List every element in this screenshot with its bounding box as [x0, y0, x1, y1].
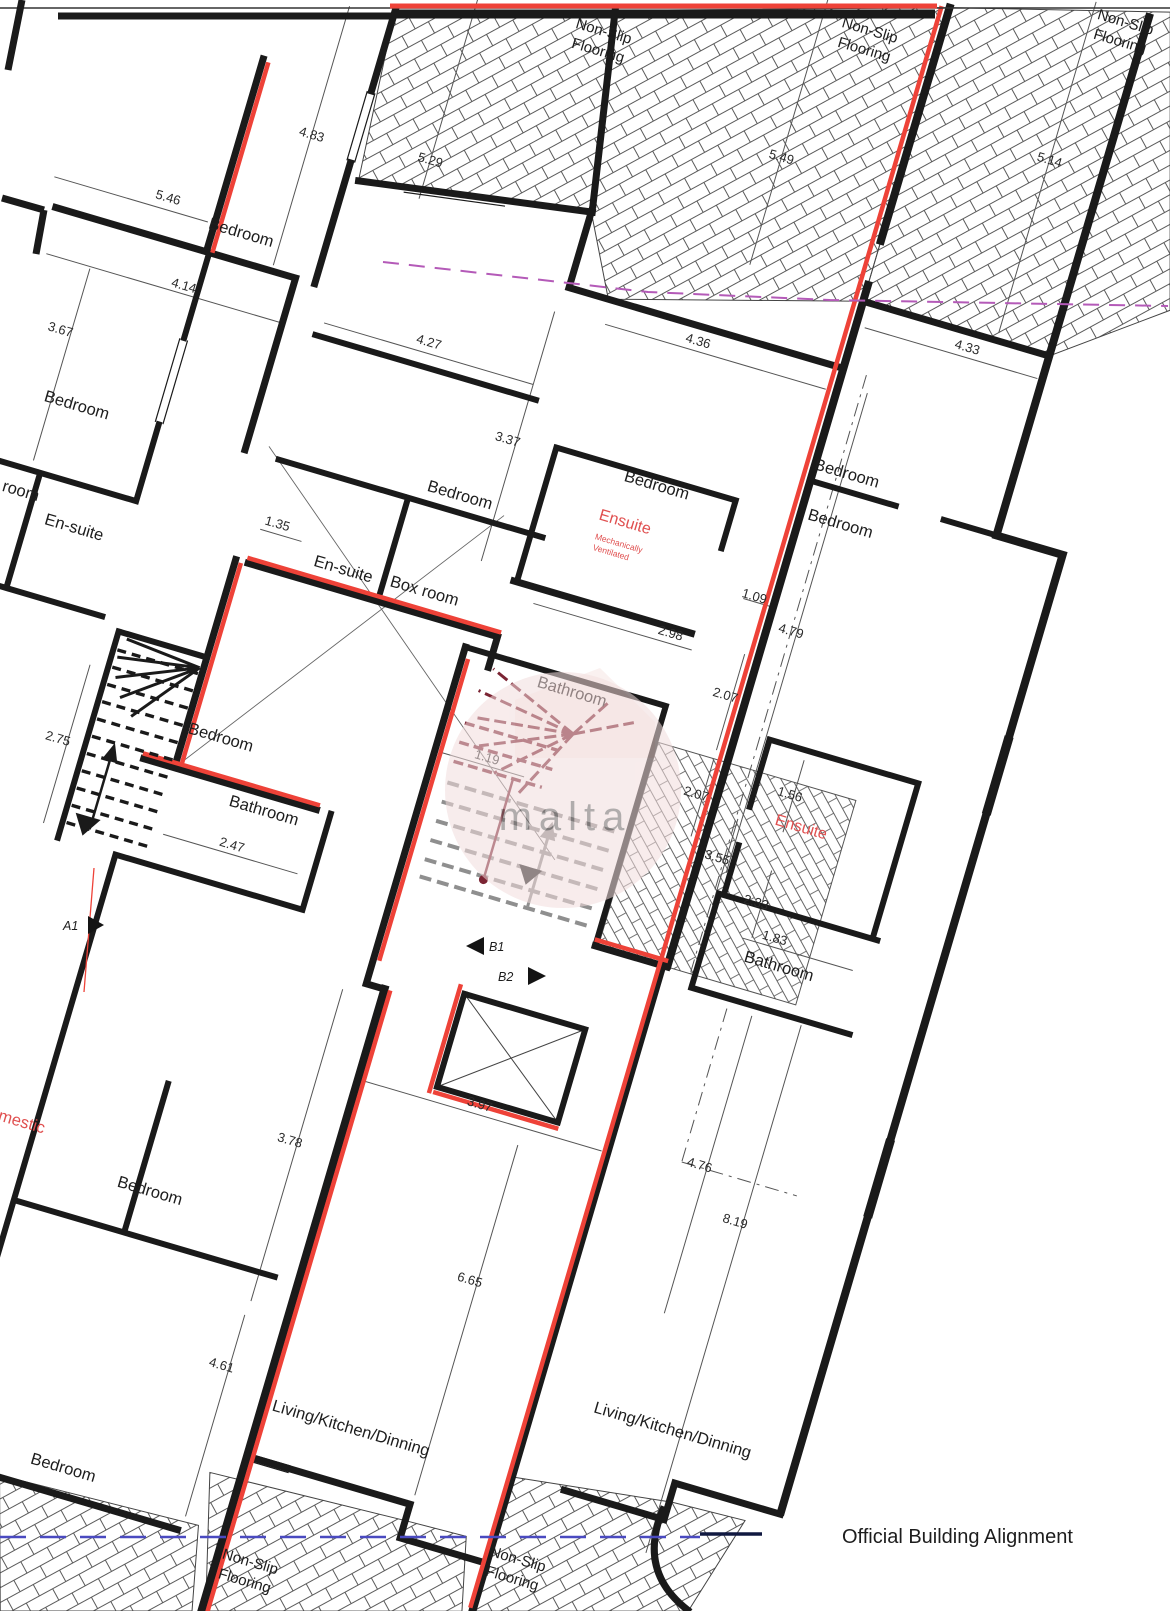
dim-3-37: 3.37 — [494, 428, 523, 450]
room-label-bedroom: Bedroom — [622, 467, 691, 503]
dim-2-75: 2.75 — [44, 727, 73, 749]
room-label-bedroom: Bedroom — [206, 215, 275, 251]
room-label-bedroom: Bedroom — [42, 387, 111, 423]
section-label-a1: A1 — [62, 919, 78, 933]
dim-6-65: 6.65 — [456, 1269, 485, 1291]
dim-4-79: 4.79 — [777, 620, 806, 642]
dim-1-09: 1.09 — [740, 585, 769, 607]
dim-4-27: 4.27 — [415, 331, 444, 353]
alignment-label: Official Building Alignment — [842, 1526, 1073, 1548]
dim-3-78: 3.78 — [276, 1129, 305, 1151]
dim-5-46: 5.46 — [154, 187, 183, 209]
dim-4-76: 4.76 — [685, 1154, 714, 1176]
section-arrow-b2 — [528, 967, 546, 985]
section-label-b1: B1 — [489, 940, 504, 954]
room-label-bedroom: Bedroom — [115, 1173, 184, 1209]
room-label-living: Living/Kitchen/Dinning — [270, 1397, 432, 1460]
room-label-bedroom: Bedroom — [29, 1450, 98, 1486]
room-label-living: Living/Kitchen/Dinning — [592, 1399, 754, 1462]
room-label-bedroom: Bedroom — [806, 506, 875, 542]
agency-watermark: malta — [445, 668, 681, 908]
floor-plan-canvas: Bedroom Bedroom Bedroom Bedroom Bedroom … — [0, 0, 1170, 1611]
dim-4-61: 4.61 — [207, 1354, 236, 1376]
section-arrow-b1 — [466, 937, 484, 955]
room-label-en-suite: En-suite — [43, 510, 106, 544]
dim-2-47: 2.47 — [218, 834, 247, 856]
section-label-b2: B2 — [498, 970, 513, 984]
dim-3-67: 3.67 — [46, 319, 75, 341]
interior-walls — [0, 206, 1010, 1611]
dim-8-19: 8.19 — [721, 1210, 750, 1232]
section-markers: A1 B1 B2 — [62, 868, 546, 992]
dim-4-14: 4.14 — [170, 275, 199, 297]
watermark-text: malta — [499, 795, 632, 839]
dim-4-83: 4.83 — [298, 124, 327, 146]
